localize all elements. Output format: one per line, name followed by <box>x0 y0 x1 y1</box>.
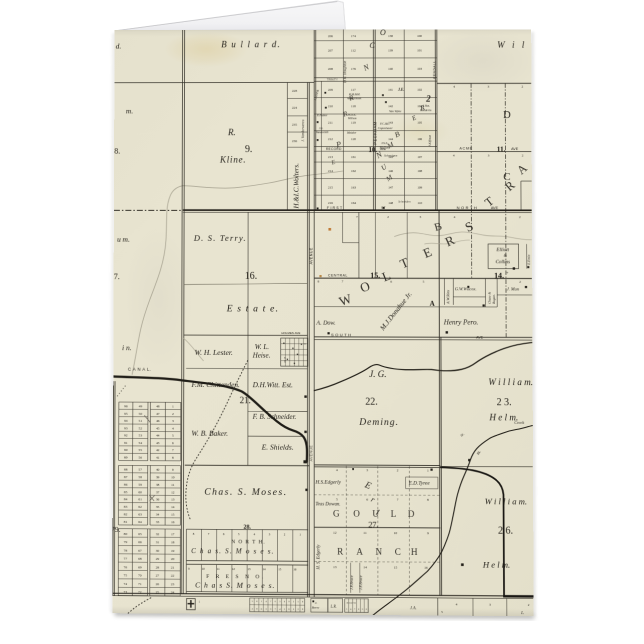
svg-text:33: 33 <box>156 520 160 524</box>
svg-text:146: 146 <box>388 169 393 173</box>
svg-text:m.: m. <box>126 106 133 115</box>
svg-text:72: 72 <box>138 590 142 594</box>
svg-text:9: 9 <box>256 609 257 611</box>
svg-text:80: 80 <box>124 532 128 536</box>
svg-text:13: 13 <box>171 498 175 502</box>
svg-text:2: 2 <box>293 601 294 603</box>
svg-text:J.P.Bruce: J.P.Bruce <box>350 575 354 590</box>
svg-text:J. Mun: J. Mun <box>507 286 519 291</box>
svg-text:5: 5 <box>298 601 299 603</box>
svg-text:77: 77 <box>124 557 128 561</box>
svg-text:21: 21 <box>171 565 175 569</box>
svg-text:57: 57 <box>138 468 142 472</box>
svg-text:64: 64 <box>138 520 142 524</box>
svg-text:C A N A L.: C A N A L. <box>128 367 151 372</box>
svg-text:L.: L. <box>520 610 524 615</box>
svg-text:216: 216 <box>328 201 333 205</box>
svg-text:19: 19 <box>171 549 175 553</box>
svg-text:5: 5 <box>252 601 253 603</box>
svg-text:11: 11 <box>363 531 367 535</box>
svg-text:22: 22 <box>171 574 175 578</box>
svg-text:20: 20 <box>171 557 175 561</box>
svg-text:48: 48 <box>156 404 160 408</box>
svg-text:67: 67 <box>138 549 142 553</box>
svg-text:AVE: AVE <box>511 147 519 151</box>
svg-text:A: A <box>356 546 363 556</box>
svg-text:Teas Dowan.: Teas Dowan. <box>315 502 340 507</box>
svg-text:209: 209 <box>328 88 333 92</box>
svg-text:D: D <box>503 110 511 121</box>
svg-text:7: 7 <box>172 448 174 452</box>
svg-text:89: 89 <box>124 455 128 459</box>
svg-text:112: 112 <box>351 49 356 53</box>
svg-text:HOLMES AVE: HOLMES AVE <box>281 331 300 335</box>
svg-text:45: 45 <box>156 426 160 430</box>
svg-text:16: 16 <box>171 520 175 524</box>
svg-text:A. Dow.: A. Dow. <box>315 321 335 327</box>
svg-text:68: 68 <box>138 557 142 561</box>
svg-text:6: 6 <box>172 441 174 445</box>
svg-text:3: 3 <box>362 609 363 611</box>
svg-text:34: 34 <box>156 513 160 517</box>
svg-text:5: 5 <box>293 609 294 611</box>
svg-text:92: 92 <box>124 433 128 437</box>
svg-text:107: 107 <box>417 155 422 159</box>
svg-text:A: A <box>430 301 435 308</box>
svg-text:162: 162 <box>351 169 356 173</box>
svg-text:N O R T H: N O R T H <box>347 603 356 605</box>
svg-text:90: 90 <box>124 448 128 452</box>
svg-text:8: 8 <box>302 601 303 603</box>
svg-text:52: 52 <box>139 426 143 430</box>
svg-text:148: 148 <box>388 201 393 205</box>
svg-text:13: 13 <box>333 565 337 569</box>
svg-text:24: 24 <box>171 591 175 595</box>
svg-text:94: 94 <box>124 419 128 423</box>
svg-text:2 6.: 2 6. <box>498 525 513 536</box>
svg-text:83: 83 <box>124 505 128 509</box>
svg-text:1: 1 <box>427 468 429 472</box>
svg-text:211: 211 <box>328 121 333 125</box>
svg-text:164: 164 <box>351 201 356 205</box>
svg-text:10: 10 <box>202 567 206 571</box>
svg-text:R: R <box>337 546 343 556</box>
svg-text:59: 59 <box>138 483 142 487</box>
svg-text:7: 7 <box>354 609 355 611</box>
svg-text:139: 139 <box>388 48 393 52</box>
svg-text:39: 39 <box>156 475 160 479</box>
svg-text:30: 30 <box>156 549 160 553</box>
svg-text:12: 12 <box>333 531 337 535</box>
svg-text:d.: d. <box>116 41 122 50</box>
svg-text:23: 23 <box>171 582 175 586</box>
svg-text:A.W.Rins: A.W.Rins <box>446 289 450 304</box>
svg-text:12: 12 <box>171 490 175 494</box>
svg-text:95: 95 <box>124 412 128 416</box>
svg-text:210: 210 <box>328 104 333 108</box>
svg-text:R.: R. <box>227 127 236 137</box>
svg-text:29: 29 <box>156 557 160 561</box>
svg-text:Henry Pero.: Henry Pero. <box>443 319 479 326</box>
svg-text:O: O <box>353 508 360 518</box>
svg-text:66: 66 <box>138 540 142 544</box>
svg-text:4: 4 <box>350 609 351 611</box>
svg-text:63: 63 <box>138 512 142 516</box>
svg-text:60: 60 <box>138 490 142 494</box>
svg-text:11: 11 <box>217 567 221 571</box>
svg-text:108: 108 <box>417 169 422 173</box>
svg-text:32: 32 <box>156 532 160 536</box>
svg-text:37: 37 <box>156 490 160 494</box>
svg-text:KENDALL: KENDALL <box>433 61 437 79</box>
svg-text:W. L.: W. L. <box>255 344 270 351</box>
svg-text:3: 3 <box>279 601 280 603</box>
svg-text:207: 207 <box>328 49 333 53</box>
svg-text:3: 3 <box>172 419 174 423</box>
svg-text:58: 58 <box>138 475 142 479</box>
svg-text:8: 8 <box>288 609 289 611</box>
svg-text:8: 8 <box>317 279 319 283</box>
svg-text:H e l m.: H e l m. <box>488 412 518 422</box>
svg-text:174: 174 <box>351 34 356 38</box>
svg-text:Willson: Willson <box>348 116 357 120</box>
svg-text:3: 3 <box>266 609 267 611</box>
svg-text:0: 0 <box>358 609 359 611</box>
svg-text:9.: 9. <box>245 144 252 155</box>
svg-text:65: 65 <box>138 532 142 536</box>
svg-text:J.: J. <box>315 601 317 605</box>
svg-text:224: 224 <box>292 106 297 110</box>
svg-text:9: 9 <box>288 601 289 603</box>
svg-text:208: 208 <box>328 67 333 71</box>
svg-text:214: 214 <box>328 169 333 173</box>
svg-text:14: 14 <box>262 567 266 571</box>
svg-text:106: 106 <box>417 137 422 141</box>
svg-text:101: 101 <box>417 48 422 52</box>
svg-text:E.Emia: E.Emia <box>527 254 531 265</box>
svg-text:0: 0 <box>275 601 276 603</box>
svg-text:27.: 27. <box>368 520 378 529</box>
svg-text:69: 69 <box>138 565 142 569</box>
svg-text:109: 109 <box>417 185 422 189</box>
svg-text:2 3.: 2 3. <box>496 397 511 408</box>
svg-text:F.C.&L.: F.C.&L. <box>379 122 390 126</box>
svg-text:74: 74 <box>124 582 128 586</box>
svg-text:NORTH: NORTH <box>457 205 479 210</box>
svg-text:Schneigen: Schneigen <box>384 154 398 158</box>
svg-text:88: 88 <box>124 468 128 472</box>
svg-text:9: 9 <box>302 609 303 611</box>
svg-text:16: 16 <box>293 567 297 571</box>
svg-text:1: 1 <box>172 404 174 408</box>
svg-text:Vanderbilt: Vanderbilt <box>316 130 329 134</box>
svg-text:79: 79 <box>124 540 128 544</box>
svg-text:14.: 14. <box>494 271 504 280</box>
svg-text:8.: 8. <box>114 147 120 156</box>
svg-text:56: 56 <box>138 455 142 459</box>
svg-text:10: 10 <box>171 475 175 479</box>
svg-text:53: 53 <box>139 434 143 438</box>
svg-text:Mt W: Mt W <box>284 356 287 363</box>
svg-text:176: 176 <box>351 67 356 71</box>
svg-text:J.Kiffman: J.Kiffman <box>428 134 432 146</box>
svg-text:70: 70 <box>138 574 142 578</box>
svg-text:D.W. Houghton: D.W. Houghton <box>343 60 347 83</box>
svg-text:10.: 10. <box>369 147 378 154</box>
svg-text:73: 73 <box>123 590 127 594</box>
svg-text:Berry: Berry <box>312 606 320 610</box>
svg-text:L: L <box>391 509 397 519</box>
svg-text:215: 215 <box>328 185 333 189</box>
svg-text:47: 47 <box>156 412 160 416</box>
svg-text:RECORD: RECORD <box>326 147 342 151</box>
svg-text:31: 31 <box>156 540 160 544</box>
svg-text:55: 55 <box>139 448 143 452</box>
svg-text:E. Shields.: E. Shields. <box>261 442 294 451</box>
svg-text:B u l l a r d.: B u l l a r d. <box>221 39 281 49</box>
svg-text:Chas. S. Moses.: Chas. S. Moses. <box>204 488 287 499</box>
svg-text:AVE: AVE <box>380 147 386 151</box>
svg-text:4: 4 <box>336 468 338 472</box>
svg-text:Bogan.: Bogan. <box>492 294 496 304</box>
svg-text:O: O <box>380 29 386 37</box>
svg-text:AVENUE: AVENUE <box>309 445 313 462</box>
svg-text:14: 14 <box>171 505 175 509</box>
svg-text:42: 42 <box>156 448 160 452</box>
svg-text:J.A.: J.A. <box>410 605 417 610</box>
svg-text:0: 0 <box>270 609 271 611</box>
svg-text:D. S. Terry.: D. S. Terry. <box>193 234 247 243</box>
svg-text:H.S.Edgerly: H.S.Edgerly <box>314 480 341 486</box>
svg-text:61: 61 <box>138 498 142 502</box>
svg-text:J. Vanderwerca: J. Vanderwerca <box>301 119 305 141</box>
svg-text:G.W.Wilcox.: G.W.Wilcox. <box>455 286 477 291</box>
svg-text:144: 144 <box>388 137 393 141</box>
svg-text:C: C <box>395 547 401 557</box>
svg-text:FIRST: FIRST <box>327 206 343 210</box>
svg-text:Copenhaver: Copenhaver <box>378 126 393 130</box>
svg-text:84: 84 <box>124 497 128 501</box>
svg-text:u m.: u m. <box>117 235 130 244</box>
svg-text:35: 35 <box>156 505 160 509</box>
svg-text:2: 2 <box>425 94 431 104</box>
svg-text:D: D <box>408 509 415 519</box>
svg-text:138: 138 <box>388 34 393 38</box>
svg-text:103: 103 <box>417 67 422 71</box>
svg-text:12: 12 <box>232 567 236 571</box>
svg-text:25: 25 <box>156 590 160 594</box>
svg-text:F. B. Schneider.: F. B. Schneider. <box>252 414 297 421</box>
svg-text:16.: 16. <box>245 271 258 282</box>
svg-text:27: 27 <box>156 574 160 578</box>
svg-text:228: 228 <box>292 89 297 93</box>
svg-text:11.: 11. <box>497 144 506 153</box>
svg-text:H: H <box>411 547 418 557</box>
svg-text:15.: 15. <box>370 271 380 280</box>
svg-text:Schneiden: Schneiden <box>398 200 411 204</box>
svg-text:75: 75 <box>124 573 128 577</box>
svg-text:7: 7 <box>397 498 399 502</box>
svg-text:26: 26 <box>156 582 160 586</box>
svg-text:96: 96 <box>124 404 128 408</box>
svg-text:G: G <box>333 508 340 518</box>
svg-text:7.: 7. <box>114 272 120 281</box>
svg-text:36: 36 <box>156 498 160 502</box>
svg-text:82: 82 <box>124 512 128 516</box>
svg-text:38: 38 <box>156 483 160 487</box>
svg-text:117: 117 <box>351 88 356 92</box>
svg-text:J. G.: J. G. <box>369 369 386 379</box>
svg-text:86: 86 <box>124 483 128 487</box>
svg-text:28: 28 <box>156 565 160 569</box>
svg-text:Collins: Collins <box>496 260 511 265</box>
svg-text:CENTRAL: CENTRAL <box>328 273 348 277</box>
svg-text:44: 44 <box>156 434 160 438</box>
svg-text:22.: 22. <box>365 397 378 408</box>
svg-text:105: 105 <box>417 121 422 125</box>
svg-text:D.H.Witt. Est.: D.H.Witt. Est. <box>252 381 294 389</box>
svg-text:15: 15 <box>394 565 398 569</box>
svg-text:50: 50 <box>139 412 143 416</box>
svg-text:18: 18 <box>171 540 175 544</box>
svg-text:2: 2 <box>172 412 174 416</box>
svg-text:SOUTH: SOUTH <box>331 332 353 337</box>
svg-text:F.M. Chittenden.: F.M. Chittenden. <box>190 381 240 389</box>
svg-text:8: 8 <box>427 498 429 502</box>
svg-text:11: 11 <box>171 483 175 487</box>
svg-text:54: 54 <box>139 441 143 445</box>
svg-text:206: 206 <box>328 34 333 38</box>
svg-text:Heise.: Heise. <box>252 352 271 359</box>
svg-text:1: 1 <box>261 601 262 603</box>
svg-text:F R E S N O.: F R E S N O. <box>206 574 266 581</box>
svg-text:15: 15 <box>278 567 282 571</box>
svg-text:91: 91 <box>124 441 128 445</box>
svg-text:J.E.: J.E. <box>398 88 404 92</box>
svg-text:Deming.: Deming. <box>358 418 399 428</box>
svg-text:21.: 21. <box>240 395 251 405</box>
svg-text:AVE: AVE <box>476 336 484 340</box>
svg-text:9: 9 <box>172 468 174 472</box>
svg-text:ACME: ACME <box>459 147 473 151</box>
svg-text:120: 120 <box>351 137 356 141</box>
svg-text:71: 71 <box>138 582 142 586</box>
svg-text:6: 6 <box>366 609 367 611</box>
svg-text:46: 46 <box>156 419 160 423</box>
svg-text:118: 118 <box>351 104 356 108</box>
svg-text:3: 3 <box>366 468 368 472</box>
svg-text:H. S. Edgerly: H. S. Edgerly <box>315 543 320 570</box>
svg-text:85: 85 <box>124 490 128 494</box>
svg-text:Kline.: Kline. <box>219 155 246 165</box>
svg-text:W. B. Baker.: W. B. Baker. <box>191 429 228 438</box>
svg-text:212: 212 <box>328 137 333 141</box>
svg-text:H e l m.: H e l m. <box>482 560 510 569</box>
svg-text:i n.: i n. <box>122 343 132 352</box>
svg-text:17: 17 <box>171 532 175 536</box>
svg-text:43: 43 <box>156 441 160 445</box>
svg-text:79.: 79. <box>112 525 120 534</box>
svg-text:W i l l i a m.: W i l l i a m. <box>488 377 533 387</box>
svg-text:E s t a t e.: E s t a t e. <box>226 304 279 314</box>
svg-text:E.Faber: E.Faber <box>316 113 328 117</box>
svg-text:87: 87 <box>124 475 128 479</box>
svg-text:142: 142 <box>388 104 393 108</box>
svg-text:110: 110 <box>417 201 422 205</box>
svg-text:N: N <box>375 547 382 557</box>
svg-text:62: 62 <box>138 505 142 509</box>
svg-text:1: 1 <box>284 609 285 611</box>
svg-text:13: 13 <box>247 567 251 571</box>
svg-text:TRINITY: TRINITY <box>327 77 338 81</box>
svg-text:16: 16 <box>424 566 428 570</box>
svg-text:5: 5 <box>336 497 338 501</box>
svg-text:14: 14 <box>363 565 367 569</box>
svg-text:H.&I.C.Wolters.: H.&I.C.Wolters. <box>293 163 300 210</box>
svg-text:51: 51 <box>139 419 143 423</box>
svg-text:8: 8 <box>256 601 257 603</box>
svg-text:119: 119 <box>351 121 356 125</box>
svg-text:236: 236 <box>292 139 297 143</box>
svg-text:8: 8 <box>172 456 174 460</box>
svg-text:AVENUE: AVENUE <box>309 247 313 264</box>
svg-text:10: 10 <box>394 531 398 535</box>
svg-text:6: 6 <box>366 497 368 501</box>
svg-text:C h a s. S. M o s e s.: C h a s. S. M o s e s. <box>191 548 275 556</box>
svg-text:161: 161 <box>351 155 356 159</box>
svg-text:PECKHAM: PECKHAM <box>372 121 377 144</box>
svg-text:40: 40 <box>156 468 160 472</box>
svg-text:163: 163 <box>351 185 356 189</box>
svg-text:W i l: W i l <box>497 40 527 50</box>
svg-text:W i l l i a m.: W i l l i a m. <box>485 497 527 506</box>
svg-text:ST: ST <box>381 206 385 210</box>
svg-text:N O R T H.: N O R T H. <box>231 539 265 545</box>
svg-text:28.: 28. <box>243 525 251 531</box>
svg-text:49: 49 <box>139 404 143 408</box>
svg-text:C: C <box>369 41 375 50</box>
svg-text:H: H <box>304 343 306 346</box>
svg-text:78: 78 <box>124 548 128 552</box>
svg-text:9: 9 <box>427 531 429 535</box>
svg-text:141: 141 <box>388 88 393 92</box>
svg-text:2: 2 <box>397 468 399 472</box>
svg-text:76: 76 <box>124 565 128 569</box>
svg-text:Van Wyke: Van Wyke <box>389 109 402 113</box>
svg-text:1: 1 <box>346 609 347 611</box>
svg-text:15: 15 <box>171 513 175 517</box>
svg-text:2: 2 <box>252 609 253 611</box>
svg-text:W. H. Lester.: W. H. Lester. <box>195 348 233 357</box>
svg-text:Metzler: Metzler <box>346 131 357 135</box>
svg-text:213: 213 <box>328 155 333 159</box>
svg-text:E.D.Tyree: E.D.Tyree <box>408 481 431 487</box>
svg-text:140: 140 <box>388 67 393 71</box>
svg-text:102: 102 <box>417 88 422 92</box>
svg-text:147: 147 <box>388 185 393 189</box>
svg-text:J.F.Bruce: J.F.Bruce <box>359 575 363 590</box>
svg-text:81: 81 <box>124 520 128 524</box>
svg-text:L.R.: L.R. <box>330 604 337 608</box>
svg-text:C h a s S. M o s e s.: C h a s S. M o s e s. <box>195 580 275 590</box>
svg-text:5: 5 <box>172 434 174 438</box>
svg-text:100: 100 <box>417 34 422 38</box>
svg-text:235: 235 <box>292 123 297 127</box>
svg-text:93: 93 <box>124 426 128 430</box>
svg-text:2: 2 <box>298 609 299 611</box>
svg-text:4: 4 <box>172 426 174 430</box>
svg-text:41: 41 <box>156 456 160 460</box>
